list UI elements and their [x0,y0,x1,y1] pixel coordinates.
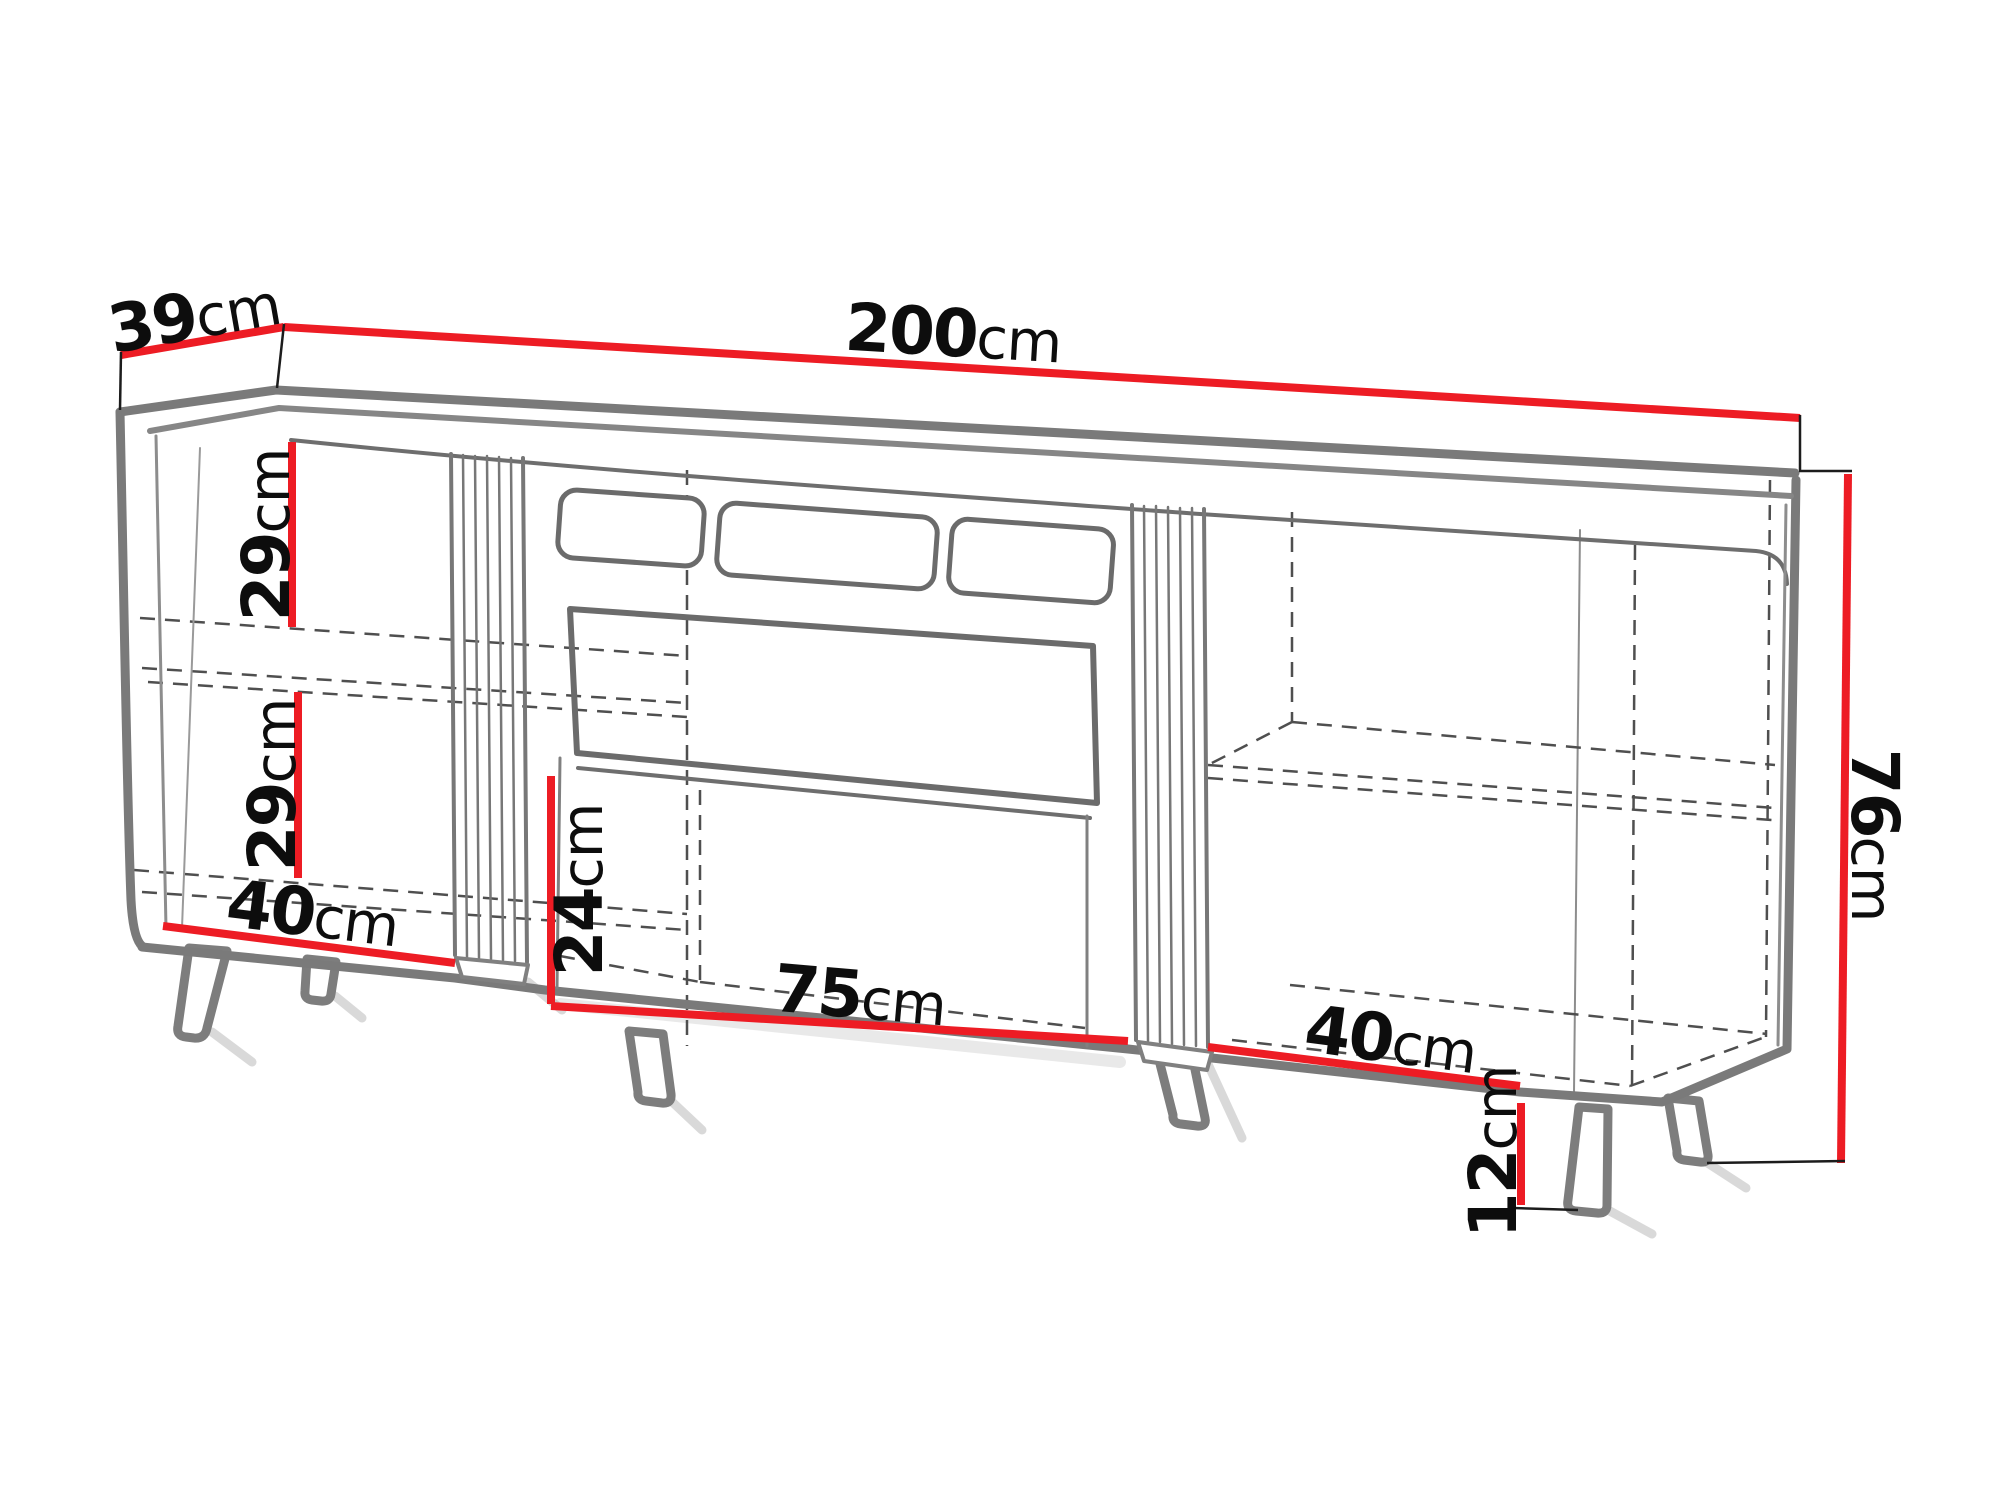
slat-column-right [1132,505,1212,1070]
slat-base-right [1138,1042,1212,1070]
leg-front-right [1568,1107,1608,1213]
leg-front-left [178,948,227,1038]
slat-column-left [451,454,528,984]
dimension-label-lower-29: 29cm [234,699,311,872]
dimension-label-width-200: 200cm [843,289,1064,379]
left-shelf-hidden-edge [140,618,687,656]
left-side-edge [120,412,142,946]
extension-lines [120,324,1852,1210]
right-shelf-hidden-edge [1292,722,1775,765]
dimension-label-upper-29: 29cm [228,449,305,622]
leg-back-right [1668,1098,1708,1162]
dimension-label-leg-12: 12cm [1455,1066,1532,1239]
vent-slot-3 [948,518,1115,604]
dimension-label-middle-75: 75cm [771,950,950,1042]
dimension-label-depth-39: 39cm [102,263,285,369]
cabinet-outline [120,390,1796,1102]
vent-slot-2 [716,502,939,590]
vent-slot-1 [557,489,705,567]
leg-middle [629,1031,671,1103]
dimension-diagram: 39cm 200cm 29cm 29cm 40cm 24cm 75cm 40cm… [0,0,2000,1500]
dimension-label-height-76: 76cm [1836,749,1913,922]
dimension-label-left-40: 40cm [222,865,403,962]
dimension-label-middle-24: 24cm [541,804,618,977]
